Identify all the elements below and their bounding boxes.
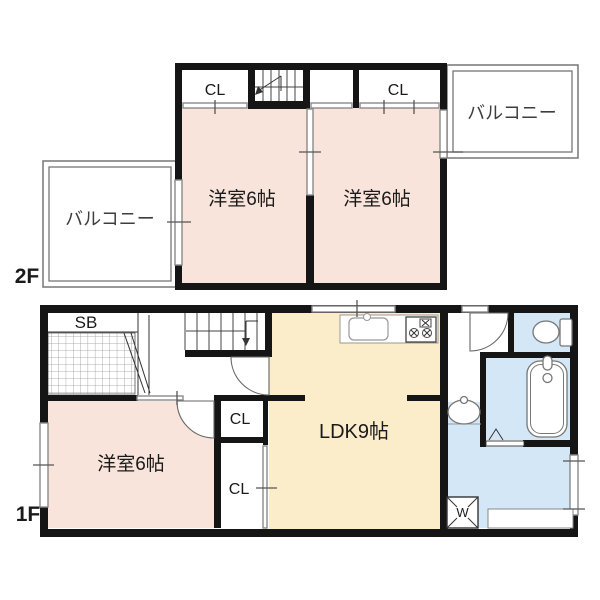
floor-plan: W 2F 1F バルコニー バルコニー CL CL 洋室6帖 洋室6帖 SB 洋… — [0, 0, 600, 600]
balcony-right-label: バルコニー — [467, 103, 557, 123]
f2-stairs-direction-arrow — [255, 76, 281, 95]
f1-bedroom-label: 洋室6帖 — [97, 453, 165, 475]
balcony-left-label: バルコニー — [65, 209, 155, 229]
closet-lower-door — [263, 446, 267, 528]
f1-closet-lower-label: CL — [229, 481, 250, 498]
f1-closet-upper-label: CL — [230, 411, 251, 428]
toilet-fixture — [533, 319, 572, 346]
f2-closet-right-label: CL — [388, 82, 409, 99]
floor2-label: 2F — [15, 265, 40, 288]
f2-right-window — [440, 110, 447, 158]
floor1-label: 1F — [16, 503, 41, 526]
kitchen-sink — [349, 318, 388, 340]
washer-label: W — [456, 505, 469, 520]
washing-machine: W — [447, 497, 478, 528]
f2-room-right-label: 洋室6帖 — [343, 188, 411, 210]
f2-closet-right-track — [360, 103, 439, 108]
f1-genkan-entrance — [48, 313, 150, 395]
f2-room-left-label: 洋室6帖 — [208, 188, 276, 210]
wash-basin — [448, 397, 481, 425]
f1-stairs-direction-arrow — [242, 321, 258, 346]
bathtub — [527, 356, 567, 437]
washroom-right-window — [570, 455, 578, 515]
f2-landing-track — [311, 103, 352, 108]
f2-closet-left-label: CL — [205, 82, 226, 99]
bedroom-threshold — [137, 396, 183, 400]
kitchen-counter — [340, 314, 438, 344]
kitchen-faucet — [364, 314, 371, 321]
f2-stairs — [255, 70, 303, 101]
floor-plan-canvas: W 2F 1F バルコニー バルコニー CL CL 洋室6帖 洋室6帖 SB 洋… — [0, 0, 600, 600]
stove — [406, 317, 436, 342]
toilet-door — [470, 313, 508, 351]
kitchen-window — [312, 306, 395, 312]
laundry-counter — [488, 509, 573, 528]
shoe-box-label: SB — [75, 313, 98, 332]
hallway-window — [462, 306, 488, 312]
ldk-label: LDK9帖 — [319, 420, 389, 443]
f1-stairs — [185, 313, 258, 350]
hall-ldk-door — [231, 357, 269, 395]
